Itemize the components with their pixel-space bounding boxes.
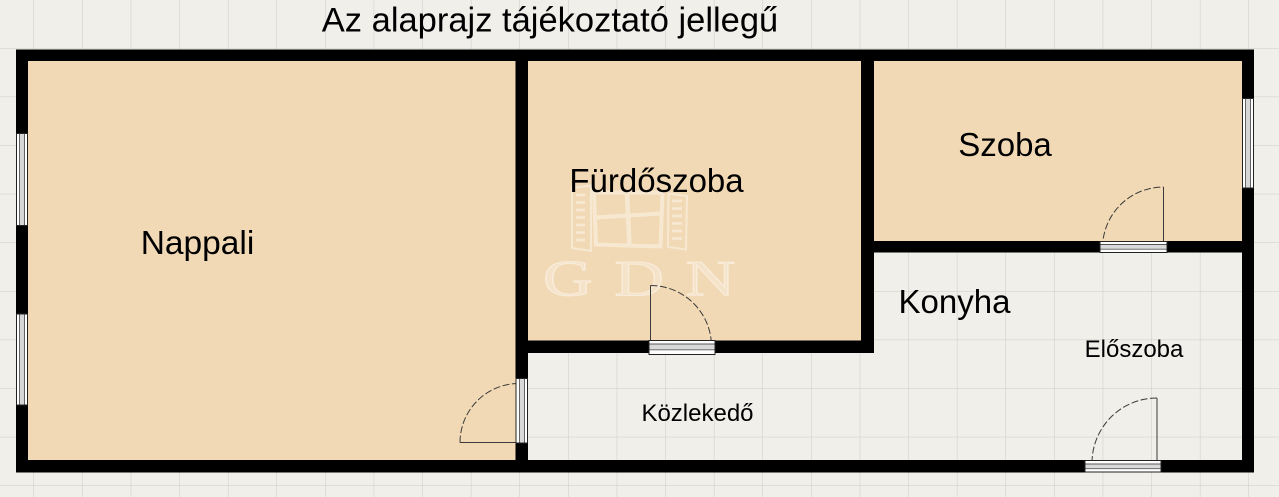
svg-text:Az alaprajz tájékoztató jelleg: Az alaprajz tájékoztató jellegű xyxy=(322,1,778,39)
svg-text:Fürdőszoba: Fürdőszoba xyxy=(569,162,744,199)
svg-text:Nappali: Nappali xyxy=(141,225,255,262)
svg-text:Előszoba: Előszoba xyxy=(1085,336,1184,363)
svg-text:Közlekedő: Közlekedő xyxy=(641,400,753,427)
svg-text:Konyha: Konyha xyxy=(899,283,1012,320)
svg-text:Szoba: Szoba xyxy=(958,126,1052,163)
